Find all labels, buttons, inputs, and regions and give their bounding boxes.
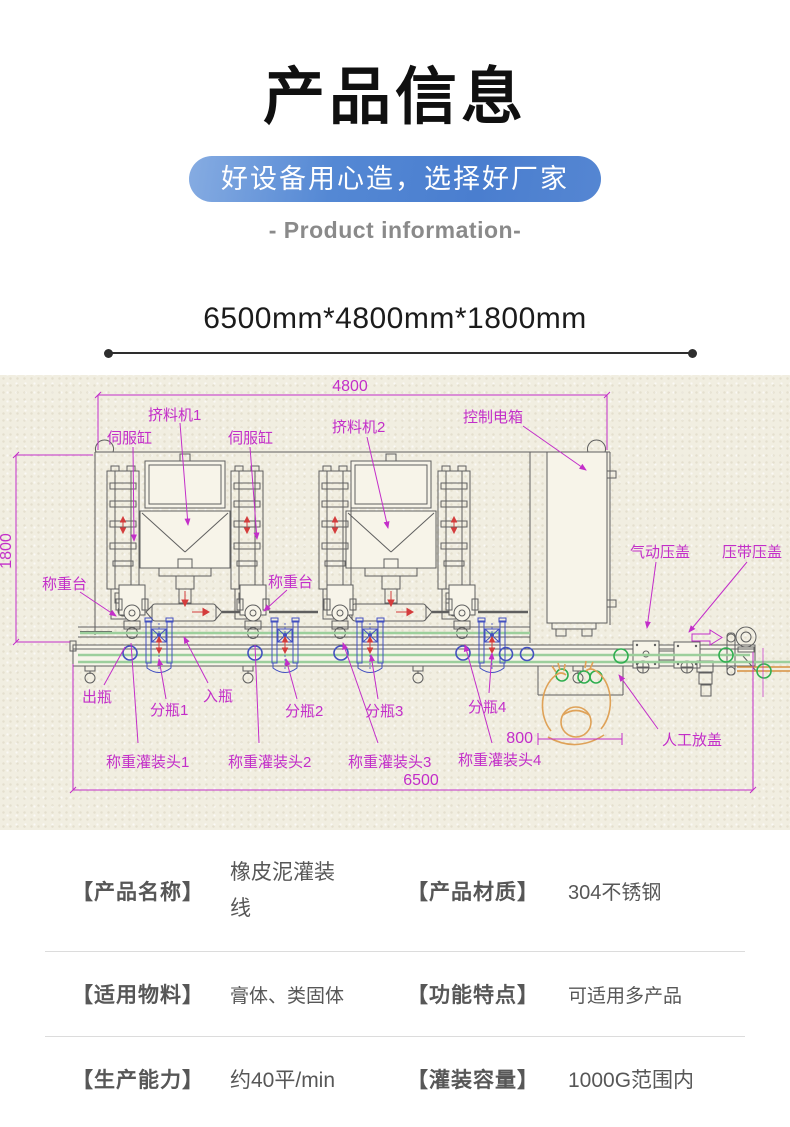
label-manual-capping: 人工放盖 xyxy=(662,732,722,749)
label-bottle-out: 出瓶 xyxy=(82,689,112,706)
label-fill-head-1: 称重灌装头1 xyxy=(106,754,189,771)
label-weigh-platform-2: 称重台 xyxy=(268,574,313,591)
spec-value: 约40平/min xyxy=(230,1069,335,1092)
spec-value: 橡皮泥灌装线 xyxy=(230,855,346,927)
slogan-text: 好设备用心造，选择好厂家 xyxy=(221,164,569,194)
label-divider-1: 分瓶1 xyxy=(150,702,188,719)
label-divider-2: 分瓶2 xyxy=(285,703,323,720)
label-fill-head-3: 称重灌装头3 xyxy=(348,754,431,771)
technical-drawing: 4800 1800 6500 800 挤料机1 伺服缸 伺服缸 挤料机2 控制电… xyxy=(0,375,790,830)
machine-dimensions: 6500mm*4800mm*1800mm xyxy=(0,302,790,336)
subtitle-en: - Product information- xyxy=(0,217,790,244)
label-divider-3: 分瓶3 xyxy=(365,703,403,720)
label-fill-head-4: 称重灌装头4 xyxy=(458,752,541,769)
spec-value: 可适用多产品 xyxy=(568,986,682,1007)
spec-label: 【产品材质】 xyxy=(407,876,568,906)
slogan-banner: 好设备用心造，选择好厂家 xyxy=(189,156,601,202)
page-title: 产品信息 xyxy=(0,0,790,132)
label-bottle-in: 入瓶 xyxy=(203,688,233,705)
spec-label: 【产品名称】 xyxy=(72,876,230,906)
label-servo-cylinder-1: 伺服缸 xyxy=(107,429,152,447)
label-extruder-1: 挤料机1 xyxy=(148,407,201,424)
spec-row: 【适用物料】 膏体、类固体 【功能特点】 可适用多产品 xyxy=(45,952,745,1037)
cad-drawing-svg: 4800 1800 6500 800 挤料机1 伺服缸 伺服缸 挤料机2 控制电… xyxy=(0,375,790,830)
label-extruder-2: 挤料机2 xyxy=(332,419,385,436)
spec-label: 【适用物料】 xyxy=(72,979,230,1009)
spec-value: 膏体、类固体 xyxy=(230,986,344,1007)
dim-1800-label: 1800 xyxy=(0,533,15,569)
divider-line xyxy=(108,352,693,354)
spec-table: 【产品名称】 橡皮泥灌装线 【产品材质】 304不锈钢 【适用物料】 膏体、类固… xyxy=(0,830,790,1112)
label-divider-4: 分瓶4 xyxy=(468,699,506,716)
label-fill-head-2: 称重灌装头2 xyxy=(228,754,311,771)
dim-6500-label: 6500 xyxy=(403,772,439,789)
spec-row: 【产品名称】 橡皮泥灌装线 【产品材质】 304不锈钢 xyxy=(45,830,745,952)
product-info-page: 产品信息 好设备用心造，选择好厂家 - Product information-… xyxy=(0,0,790,1127)
label-weigh-platform-1: 称重台 xyxy=(42,576,87,593)
spec-label: 【灌装容量】 xyxy=(407,1064,568,1094)
label-belt-capping: 压带压盖 xyxy=(722,544,782,561)
dim-4800-label: 4800 xyxy=(332,378,368,395)
label-control-box: 控制电箱 xyxy=(463,409,523,426)
label-pneumatic-capping: 气动压盖 xyxy=(630,544,690,561)
spec-row: 【生产能力】 约40平/min 【灌装容量】 1000G范围内 xyxy=(45,1037,745,1112)
spec-value: 304不锈钢 xyxy=(568,882,661,904)
dim-800-label: 800 xyxy=(506,730,533,747)
label-servo-cylinder-2: 伺服缸 xyxy=(228,429,273,447)
spec-label: 【功能特点】 xyxy=(407,979,568,1009)
spec-value: 1000G范围内 xyxy=(568,1069,694,1092)
spec-label: 【生产能力】 xyxy=(72,1064,230,1094)
